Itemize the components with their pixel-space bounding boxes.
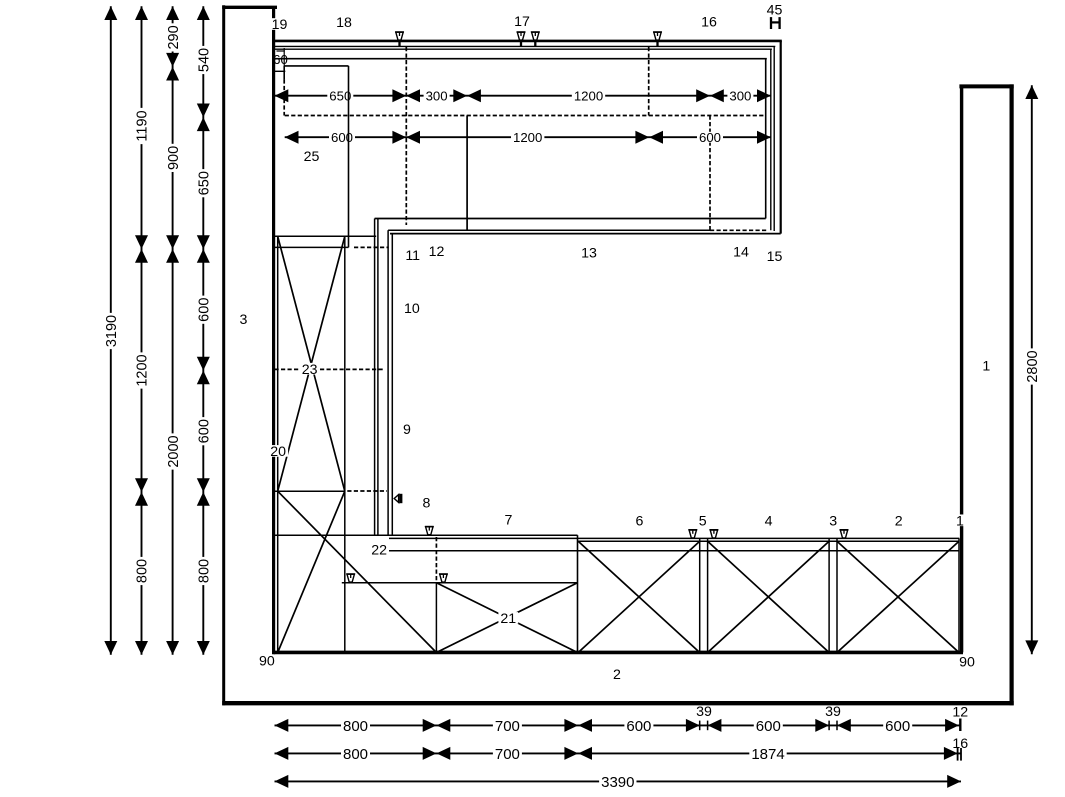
svg-text:90: 90	[959, 655, 975, 671]
svg-text:2000: 2000	[166, 435, 182, 467]
svg-text:39: 39	[696, 704, 712, 720]
svg-text:6: 6	[635, 513, 643, 529]
svg-text:290: 290	[166, 25, 182, 49]
svg-text:2: 2	[895, 513, 903, 529]
svg-text:4: 4	[765, 513, 773, 529]
svg-text:1200: 1200	[513, 130, 542, 145]
svg-text:2: 2	[613, 667, 621, 683]
svg-text:12: 12	[429, 244, 445, 260]
svg-text:600: 600	[331, 130, 353, 145]
svg-text:1200: 1200	[574, 88, 603, 103]
svg-text:600: 600	[885, 718, 910, 735]
svg-text:90: 90	[259, 654, 275, 670]
svg-text:18: 18	[336, 15, 352, 31]
svg-text:15: 15	[767, 249, 783, 265]
svg-text:800: 800	[135, 559, 151, 583]
svg-text:600: 600	[626, 718, 651, 735]
svg-text:600: 600	[197, 298, 213, 322]
svg-text:300: 300	[426, 88, 448, 103]
svg-text:23: 23	[302, 362, 318, 378]
svg-text:22: 22	[371, 543, 387, 559]
svg-text:800: 800	[197, 559, 213, 583]
svg-text:39: 39	[825, 704, 841, 720]
svg-text:1: 1	[956, 513, 964, 529]
svg-text:17: 17	[514, 14, 530, 30]
svg-text:600: 600	[699, 130, 721, 145]
svg-text:300: 300	[729, 88, 751, 103]
svg-text:12: 12	[952, 705, 968, 721]
svg-text:16: 16	[701, 15, 717, 31]
svg-text:14: 14	[733, 245, 749, 261]
svg-text:3390: 3390	[601, 774, 634, 791]
svg-text:9: 9	[403, 422, 411, 438]
svg-text:540: 540	[197, 48, 213, 72]
svg-text:45: 45	[767, 3, 783, 19]
svg-text:3: 3	[240, 312, 248, 328]
svg-text:21: 21	[500, 611, 516, 627]
svg-text:5: 5	[699, 513, 707, 529]
svg-text:600: 600	[756, 718, 781, 735]
svg-text:2800: 2800	[1025, 350, 1041, 382]
svg-text:10: 10	[404, 301, 420, 317]
svg-text:650: 650	[197, 171, 213, 195]
svg-text:800: 800	[343, 718, 368, 735]
svg-text:3: 3	[829, 513, 837, 529]
svg-text:700: 700	[495, 718, 520, 735]
svg-text:1190: 1190	[135, 110, 151, 141]
svg-text:900: 900	[166, 146, 182, 170]
svg-text:19: 19	[272, 17, 288, 33]
svg-text:800: 800	[343, 746, 368, 763]
svg-text:13: 13	[581, 246, 597, 262]
svg-text:25: 25	[304, 149, 320, 165]
svg-text:1874: 1874	[751, 746, 784, 763]
svg-text:1200: 1200	[135, 354, 151, 386]
svg-text:600: 600	[197, 419, 213, 443]
svg-text:20: 20	[270, 444, 286, 460]
svg-text:8: 8	[423, 496, 431, 512]
svg-text:11: 11	[405, 248, 420, 264]
svg-text:1: 1	[982, 358, 990, 374]
svg-text:16: 16	[952, 736, 968, 752]
svg-text:7: 7	[505, 513, 513, 529]
svg-text:3190: 3190	[104, 315, 120, 347]
svg-text:700: 700	[495, 746, 520, 763]
